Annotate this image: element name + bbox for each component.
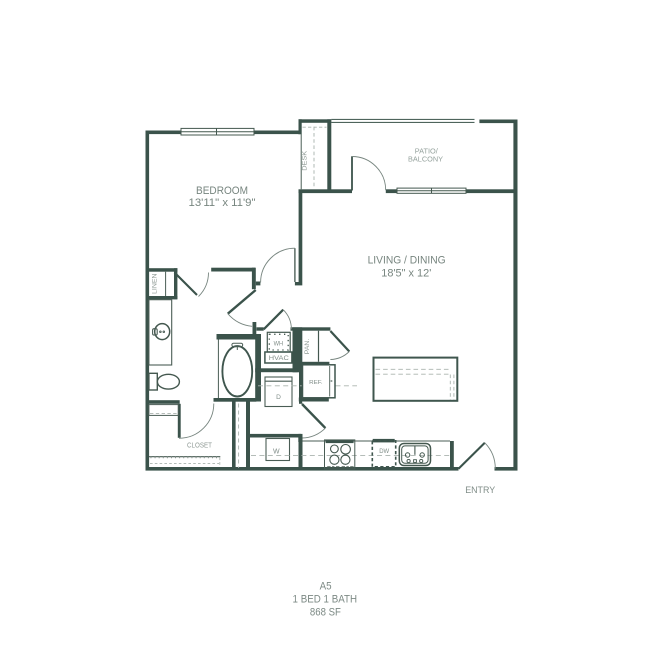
svg-text:A5: A5 (320, 581, 332, 593)
svg-text:PAN.: PAN. (304, 339, 311, 355)
svg-text:CLOSET: CLOSET (187, 442, 213, 449)
svg-text:REF.: REF. (309, 380, 323, 386)
svg-text:DESK: DESK (302, 151, 308, 171)
svg-text:18'5" x 12': 18'5" x 12' (381, 267, 431, 279)
svg-text:W: W (273, 448, 280, 455)
svg-text:BEDROOM: BEDROOM (196, 185, 248, 197)
svg-text:WH: WH (274, 341, 284, 348)
svg-text:1 BED 1 BATH: 1 BED 1 BATH (293, 594, 358, 606)
svg-text:868 SF: 868 SF (310, 606, 341, 618)
svg-text:ENTRY: ENTRY (465, 484, 496, 495)
svg-text:LIVING / DINING: LIVING / DINING (368, 255, 446, 267)
svg-text:D: D (276, 394, 281, 401)
svg-text:DW: DW (379, 448, 390, 455)
svg-text:HVAC: HVAC (269, 355, 289, 362)
svg-text:13'11" x 11'9": 13'11" x 11'9" (189, 197, 256, 209)
svg-text:BALCONY: BALCONY (408, 155, 443, 164)
svg-text:LINEN: LINEN (153, 273, 159, 294)
